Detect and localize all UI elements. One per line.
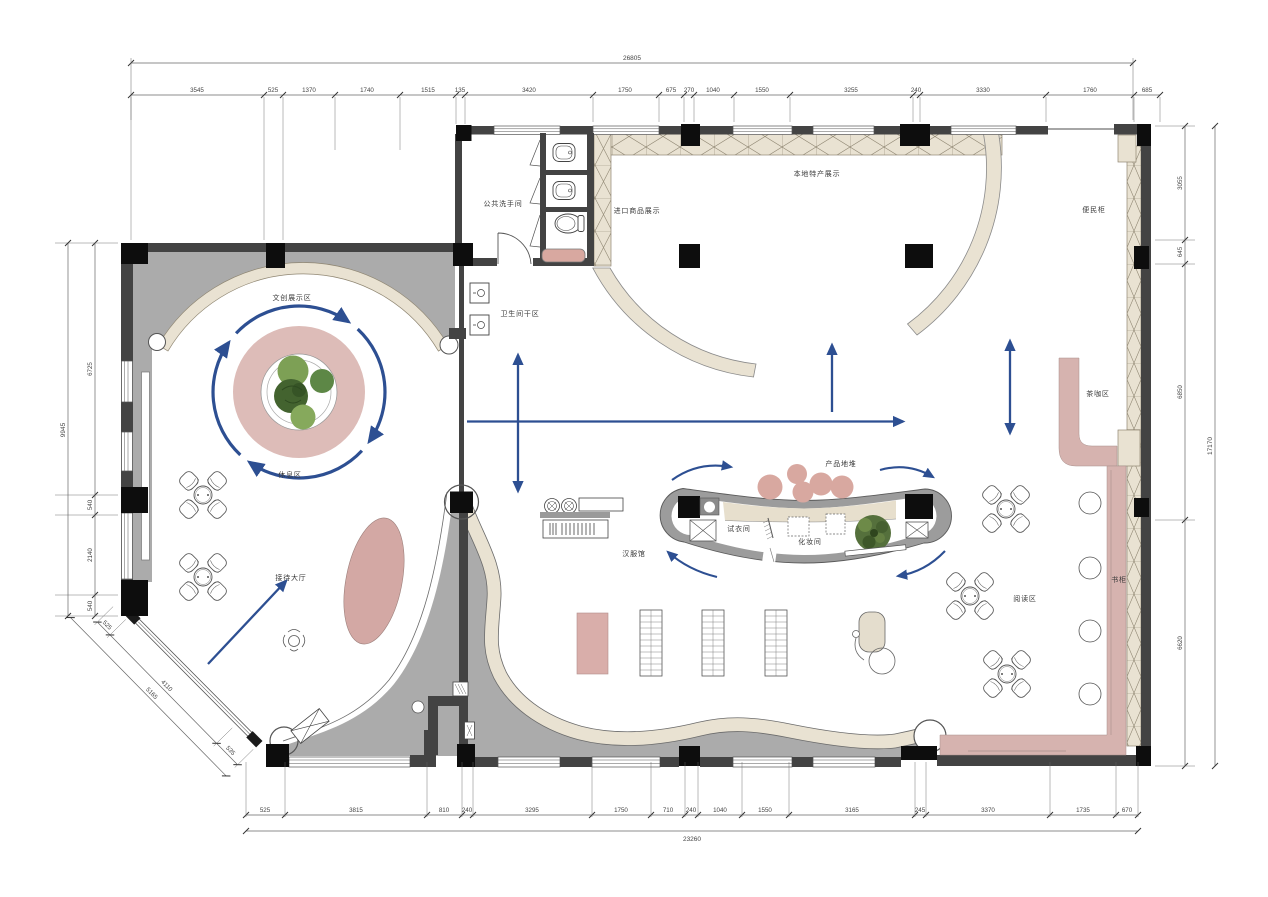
svg-text:525: 525 xyxy=(260,807,271,814)
svg-text:26805: 26805 xyxy=(623,55,641,62)
svg-text:1740: 1740 xyxy=(360,87,374,94)
svg-text:1515: 1515 xyxy=(421,87,435,94)
svg-text:便民柜: 便民柜 xyxy=(1082,205,1105,214)
svg-text:525: 525 xyxy=(268,87,279,94)
svg-text:3330: 3330 xyxy=(976,87,990,94)
svg-text:540: 540 xyxy=(87,499,94,510)
svg-text:休息区: 休息区 xyxy=(278,470,301,479)
svg-text:245: 245 xyxy=(915,807,926,814)
svg-text:阅读区: 阅读区 xyxy=(1013,594,1036,603)
svg-text:1750: 1750 xyxy=(614,807,628,814)
svg-text:文创展示区: 文创展示区 xyxy=(273,293,312,302)
svg-text:3420: 3420 xyxy=(522,87,536,94)
svg-text:1550: 1550 xyxy=(755,87,769,94)
svg-text:810: 810 xyxy=(439,807,450,814)
svg-text:汉服馆: 汉服馆 xyxy=(622,549,645,558)
svg-text:试衣间: 试衣间 xyxy=(727,524,750,533)
svg-text:3370: 3370 xyxy=(981,807,995,814)
svg-text:公共洗手间: 公共洗手间 xyxy=(484,199,523,208)
svg-text:1735: 1735 xyxy=(1076,807,1090,814)
svg-text:240: 240 xyxy=(462,807,473,814)
svg-text:240: 240 xyxy=(911,87,922,94)
svg-text:675: 675 xyxy=(666,87,677,94)
svg-text:3295: 3295 xyxy=(525,807,539,814)
svg-text:3165: 3165 xyxy=(845,807,859,814)
svg-text:685: 685 xyxy=(1142,87,1153,94)
svg-text:本地特产展示: 本地特产展示 xyxy=(794,169,841,178)
svg-text:540: 540 xyxy=(87,600,94,611)
svg-text:3255: 3255 xyxy=(844,87,858,94)
svg-text:3815: 3815 xyxy=(349,807,363,814)
svg-text:卫生间干区: 卫生间干区 xyxy=(501,309,540,318)
svg-text:645: 645 xyxy=(1177,246,1184,257)
svg-text:9945: 9945 xyxy=(60,422,67,437)
svg-text:135: 135 xyxy=(455,87,466,94)
svg-text:接待大厅: 接待大厅 xyxy=(275,573,306,582)
svg-text:6850: 6850 xyxy=(1177,385,1184,399)
svg-text:710: 710 xyxy=(663,807,674,814)
svg-text:进口商品展示: 进口商品展示 xyxy=(614,206,661,215)
svg-text:6725: 6725 xyxy=(87,362,94,376)
svg-text:23260: 23260 xyxy=(683,836,701,843)
svg-text:3055: 3055 xyxy=(1177,176,1184,190)
svg-text:1040: 1040 xyxy=(706,87,720,94)
svg-text:化妆间: 化妆间 xyxy=(798,537,821,546)
svg-text:1750: 1750 xyxy=(618,87,632,94)
svg-text:产品地堆: 产品地堆 xyxy=(825,459,856,468)
svg-text:书柜: 书柜 xyxy=(1111,575,1127,584)
svg-text:1040: 1040 xyxy=(713,807,727,814)
svg-text:270: 270 xyxy=(684,87,695,94)
svg-text:3545: 3545 xyxy=(190,87,204,94)
svg-text:6620: 6620 xyxy=(1177,636,1184,650)
svg-text:17170: 17170 xyxy=(1207,437,1214,455)
svg-text:240: 240 xyxy=(686,807,697,814)
svg-text:1550: 1550 xyxy=(758,807,772,814)
svg-text:670: 670 xyxy=(1122,807,1133,814)
svg-text:2140: 2140 xyxy=(87,548,94,562)
svg-text:茶咖区: 茶咖区 xyxy=(1086,389,1109,398)
svg-text:1760: 1760 xyxy=(1083,87,1097,94)
svg-text:1370: 1370 xyxy=(302,87,316,94)
